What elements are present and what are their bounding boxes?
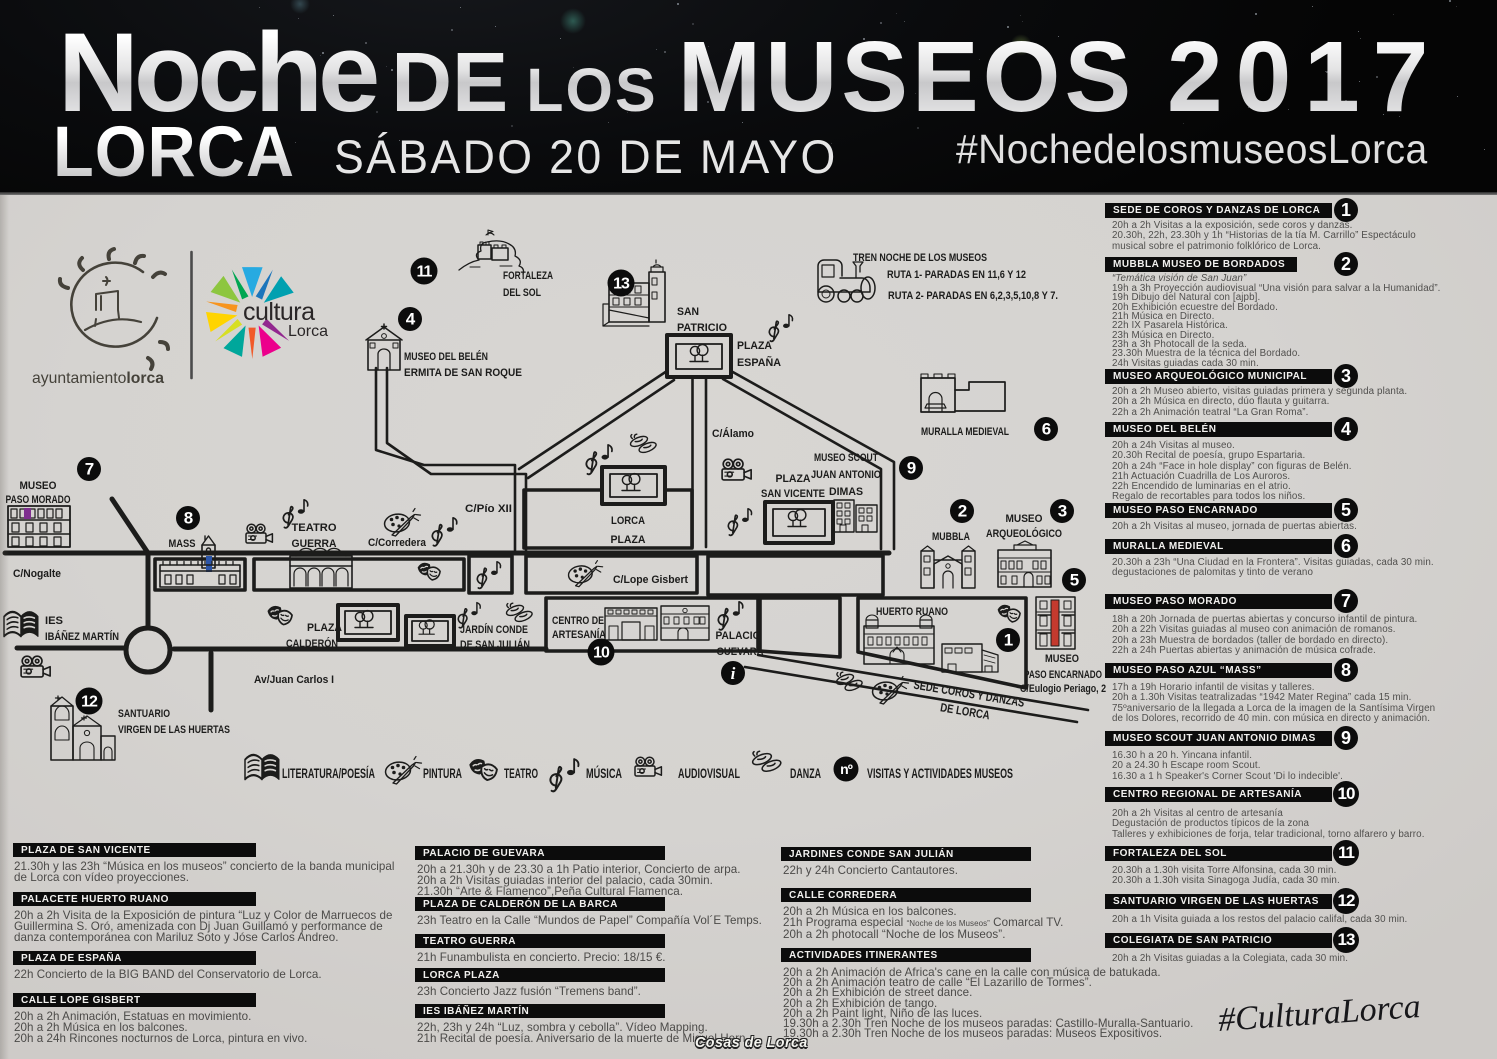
svg-text:TEATRO: TEATRO [292, 522, 337, 534]
svg-text:PLAZA: PLAZA [611, 534, 646, 546]
svg-text:VIRGEN DE LAS HUERTAS: VIRGEN DE LAS HUERTAS [118, 724, 230, 736]
svg-text:ESPAÑA: ESPAÑA [737, 356, 781, 369]
svg-text:GUEVARA: GUEVARA [717, 646, 764, 658]
svg-text:PATRICIO: PATRICIO [677, 322, 727, 334]
svg-text:PASO ENCARNADO: PASO ENCARNADO [1024, 669, 1102, 681]
svg-text:9: 9 [907, 459, 916, 478]
svg-text:PLAZA: PLAZA [737, 340, 772, 352]
svg-text:RUTA 1- PARADAS EN 11,6 Y 12: RUTA 1- PARADAS EN 11,6 Y 12 [887, 269, 1026, 281]
svg-text:MURALLA MEDIEVAL: MURALLA MEDIEVAL [921, 426, 1009, 438]
svg-text:MUSEO SCOUT: MUSEO SCOUT [814, 452, 878, 464]
svg-text:LITERATURA/POESÍA: LITERATURA/POESÍA [282, 766, 375, 781]
svg-text:LORCA: LORCA [611, 515, 645, 527]
svg-text:C/Eulogio Periago, 2: C/Eulogio Periago, 2 [1020, 683, 1106, 695]
svg-text:TEATRO: TEATRO [504, 766, 538, 781]
svg-text:DE LORCA: DE LORCA [939, 700, 991, 722]
svg-text:PINTURA: PINTURA [423, 766, 462, 781]
svg-text:CENTRO DE: CENTRO DE [552, 615, 604, 627]
svg-text:MASS: MASS [169, 538, 196, 550]
svg-text:ARQUEOLÓGICO: ARQUEOLÓGICO [986, 527, 1062, 540]
svg-text:8: 8 [184, 509, 193, 528]
svg-text:i: i [731, 664, 736, 683]
svg-text:SANTUARIO: SANTUARIO [118, 708, 170, 720]
svg-text:PALACIO: PALACIO [716, 630, 761, 642]
svg-text:IES: IES [45, 615, 63, 627]
svg-text:ayuntamientolorca: ayuntamientolorca [32, 370, 164, 387]
svg-text:5: 5 [1070, 571, 1079, 590]
svg-text:C/Álamo: C/Álamo [712, 427, 754, 440]
svg-text:GUERRA: GUERRA [292, 538, 337, 550]
svg-text:MUSEO: MUSEO [1006, 513, 1043, 525]
svg-text:cultura: cultura [243, 298, 315, 326]
svg-text:VISITAS Y ACTIVIDADES MUSEOS: VISITAS Y ACTIVIDADES MUSEOS [867, 766, 1013, 781]
svg-text:JARDÍN CONDE: JARDÍN CONDE [460, 623, 528, 636]
svg-text:C/Lope Gisbert: C/Lope Gisbert [613, 574, 688, 586]
svg-text:FORTALEZA: FORTALEZA [503, 270, 553, 282]
svg-text:JUAN ANTONIO: JUAN ANTONIO [811, 469, 881, 481]
svg-text:TREN NOCHE DE LOS MUSEOS: TREN NOCHE DE LOS MUSEOS [853, 252, 987, 264]
svg-text:7: 7 [85, 460, 94, 479]
svg-text:SAN: SAN [677, 306, 699, 318]
svg-text:Lorca: Lorca [288, 323, 328, 340]
svg-text:HUERTO RUANO: HUERTO RUANO [876, 606, 948, 618]
svg-text:C/Pío XII: C/Pío XII [465, 503, 512, 515]
svg-text:13: 13 [613, 276, 630, 293]
svg-text:PLAZA: PLAZA [307, 622, 342, 634]
svg-text:DEL SOL: DEL SOL [503, 287, 541, 299]
svg-text:PASO MORADO: PASO MORADO [6, 494, 71, 506]
svg-text:12: 12 [81, 694, 98, 711]
svg-text:SAN VICENTE: SAN VICENTE [761, 488, 825, 500]
svg-text:MUSEO: MUSEO [1045, 653, 1079, 665]
svg-text:MUSEO DEL BELÉN: MUSEO DEL BELÉN [404, 350, 488, 363]
svg-text:C/Corredera: C/Corredera [368, 537, 427, 549]
svg-text:C/Nogalte: C/Nogalte [13, 568, 61, 580]
svg-text:11: 11 [417, 264, 433, 281]
svg-text:PLAZA: PLAZA [776, 473, 811, 485]
svg-text:MÚSICA: MÚSICA [586, 766, 622, 781]
svg-text:DANZA: DANZA [790, 766, 821, 781]
svg-text:AUDIOVISUAL: AUDIOVISUAL [678, 766, 740, 781]
svg-text:10: 10 [593, 645, 610, 662]
svg-text:CALDERÓN: CALDERÓN [286, 637, 338, 650]
svg-text:MUSEO: MUSEO [20, 480, 57, 492]
svg-text:MUBBLA: MUBBLA [932, 531, 970, 543]
svg-text:Av/Juan Carlos I: Av/Juan Carlos I [254, 674, 334, 686]
svg-text:2: 2 [958, 502, 967, 521]
svg-text:ERMITA DE SAN ROQUE: ERMITA DE SAN ROQUE [404, 367, 522, 379]
svg-text:nº: nº [840, 761, 853, 777]
svg-text:6: 6 [1042, 420, 1051, 439]
svg-text:1: 1 [1004, 631, 1013, 650]
svg-text:DIMAS: DIMAS [829, 486, 863, 498]
svg-text:DE SAN JULIÁN: DE SAN JULIÁN [460, 638, 530, 651]
svg-text:3: 3 [1058, 502, 1067, 521]
svg-text:RUTA 2- PARADAS EN 6,2,3,5,10,: RUTA 2- PARADAS EN 6,2,3,5,10,8 Y 7. [888, 290, 1058, 302]
svg-text:IBÁÑEZ MARTÍN: IBÁÑEZ MARTÍN [45, 630, 119, 643]
